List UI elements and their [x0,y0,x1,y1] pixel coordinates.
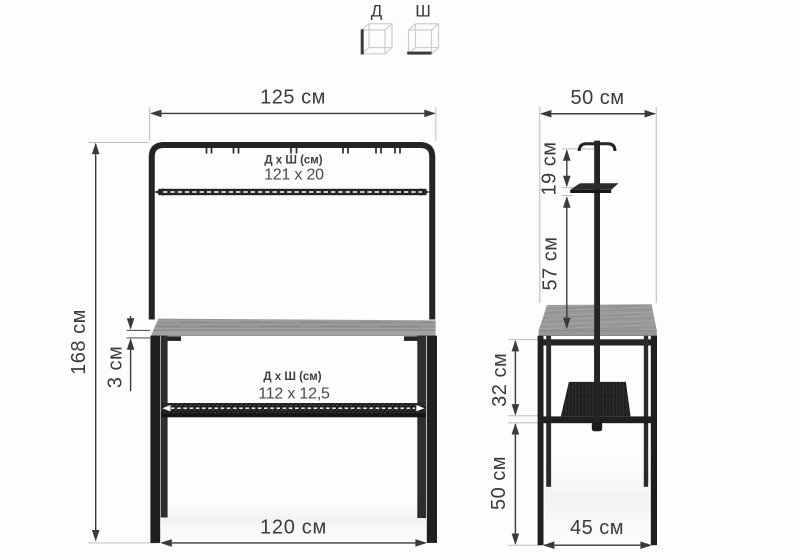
svg-text:121 х 20: 121 х 20 [264,167,324,184]
svg-text:125 см: 125 см [260,87,326,109]
svg-text:50 см: 50 см [570,87,624,109]
svg-text:Д х Ш (см): Д х Ш (см) [264,155,322,167]
svg-text:45 см: 45 см [570,517,624,539]
svg-text:Д: Д [371,2,383,21]
svg-text:112 х 12,5: 112 х 12,5 [258,386,330,403]
svg-text:32 см: 32 см [489,353,511,407]
svg-text:168 см: 168 см [68,309,90,375]
svg-text:Ш: Ш [415,2,431,21]
svg-text:57 см: 57 см [539,236,561,290]
svg-text:19 см: 19 см [539,141,561,195]
svg-text:Д х Ш (см): Д х Ш (см) [263,371,321,383]
svg-text:3 см: 3 см [105,346,127,388]
svg-text:50 см: 50 см [488,456,510,510]
svg-text:120 см: 120 см [260,517,327,539]
